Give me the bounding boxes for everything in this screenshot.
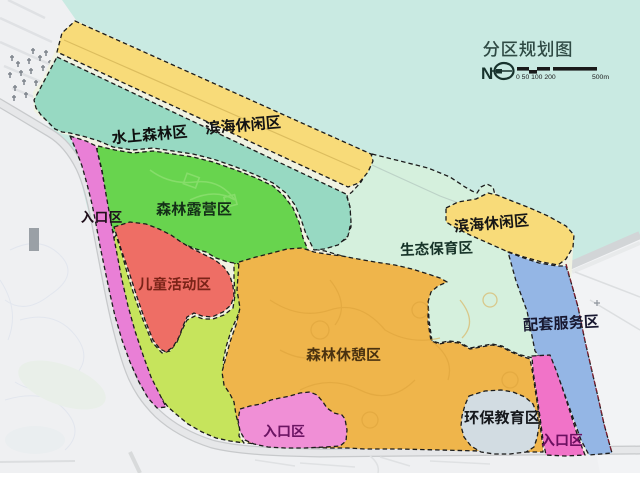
svg-text:500m: 500m bbox=[592, 74, 609, 81]
svg-text:0 50 100 200: 0 50 100 200 bbox=[516, 74, 556, 81]
svg-text:N: N bbox=[481, 64, 493, 83]
